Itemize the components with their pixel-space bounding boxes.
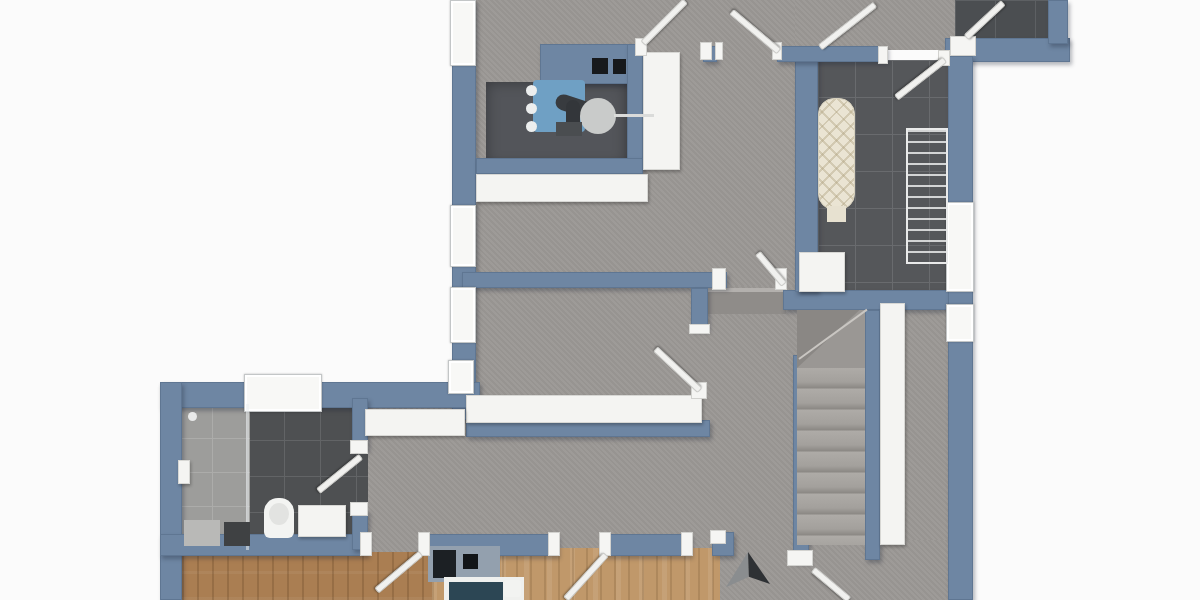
wall-vent-1 (592, 58, 608, 74)
wall-left-lower (160, 382, 182, 600)
wall-stair-right (865, 310, 880, 560)
bed-pillow (504, 580, 521, 597)
window-left-3 (450, 287, 476, 343)
ironing-board (818, 98, 855, 210)
boiler-base-dark (556, 122, 582, 136)
window-right-2 (946, 304, 974, 342)
counter-upper (476, 174, 648, 202)
shower-head (178, 460, 190, 484)
drying-rack (906, 128, 948, 264)
window-left-1 (450, 0, 476, 66)
dark-box-small (463, 554, 478, 569)
stairs-side-partition (880, 303, 905, 545)
jamb-laundry-left (878, 46, 888, 64)
jamb-north-door-left (715, 42, 723, 60)
wall-technical-right (627, 44, 643, 168)
floor-plan-canvas (0, 0, 1200, 600)
wall-vent-2 (613, 59, 626, 74)
jamb-tech-door-right (700, 42, 712, 60)
wall-storage-right (1048, 0, 1068, 44)
jamb-bed2-right (599, 532, 611, 556)
wall-under-nook (476, 158, 643, 174)
nightstand-dark (433, 550, 456, 578)
window-left-4 (448, 360, 474, 394)
radiator-hall (365, 409, 465, 436)
jamb-storage-door (950, 36, 976, 56)
cabinet-tall (643, 52, 680, 170)
jamb-south-pier (710, 530, 726, 544)
wall-stair-top (783, 290, 950, 310)
jamb-bed2-left (548, 532, 560, 556)
boiler-knob-1 (526, 85, 537, 96)
bed-blanket (449, 582, 503, 600)
boiler-expansion-tank (580, 98, 616, 134)
toilet-bowl (269, 503, 289, 525)
vanity (298, 505, 346, 537)
boiler-knob-2 (526, 103, 537, 114)
jamb-understair (787, 550, 813, 566)
jamb-south-opening (681, 532, 693, 556)
jamb-mid-door-left (712, 268, 726, 290)
bath-mat (224, 522, 250, 546)
window-left-2 (450, 205, 476, 267)
boiler-knob-3 (526, 121, 537, 132)
boiler-pipe-thin (614, 114, 654, 117)
washer-laundry (799, 252, 845, 292)
stairs-treads (797, 368, 865, 545)
wall-middle (462, 272, 727, 288)
shower-seat (184, 520, 220, 546)
window-right-1 (946, 202, 974, 292)
wall-top-middle (777, 46, 887, 62)
jamb-bed1-left (360, 532, 372, 556)
jamb-stub-cap (689, 324, 710, 334)
jamb-bath-door-bottom (350, 502, 368, 516)
jamb-bath-door-top (350, 440, 368, 454)
ironing-board-tail (827, 206, 846, 222)
window-bathroom (244, 374, 322, 412)
sideboard-long (466, 395, 702, 423)
shower-valve (188, 412, 197, 421)
wall-bedrooms-c (603, 534, 691, 556)
